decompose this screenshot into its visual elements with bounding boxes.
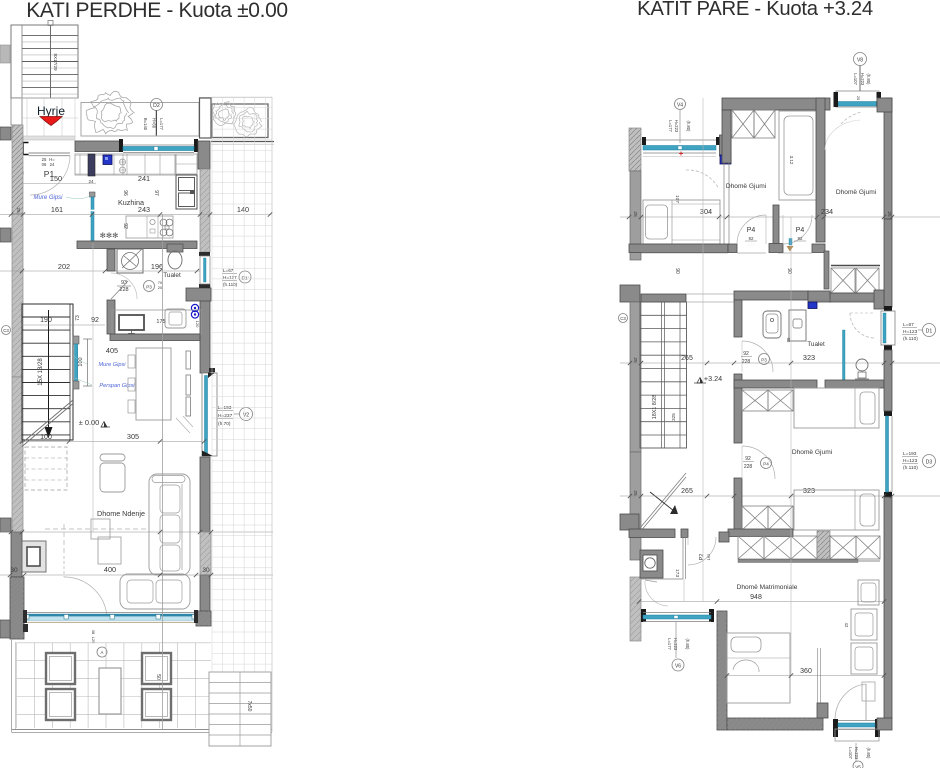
- svg-text:D1': D1': [241, 276, 248, 282]
- svg-text:175: 175: [156, 319, 165, 325]
- svg-text:L=107: L=107: [853, 73, 858, 85]
- svg-text:Dhomë Gjumi: Dhomë Gjumi: [726, 183, 767, 190]
- svg-text:228: 228: [119, 287, 128, 293]
- svg-text:Dhomë Gjumi: Dhomë Gjumi: [836, 189, 877, 196]
- svg-text:P4: P4: [763, 462, 769, 467]
- svg-text:243: 243: [138, 205, 150, 214]
- svg-text:25: 25: [632, 211, 638, 217]
- svg-text:228: 228: [744, 464, 753, 470]
- svg-text:L=107: L=107: [848, 747, 853, 759]
- svg-text:228: 228: [742, 359, 751, 365]
- svg-text:(h.80): (h.80): [686, 121, 691, 133]
- svg-text:241: 241: [138, 174, 150, 183]
- svg-text:L=177: L=177: [667, 638, 672, 650]
- svg-text:7x50: 7x50: [246, 701, 252, 712]
- svg-text:228: 228: [747, 242, 755, 247]
- svg-text:42: 42: [844, 623, 849, 628]
- svg-text:92: 92: [91, 317, 99, 324]
- svg-text:Hyrje: Hyrje: [37, 104, 65, 118]
- svg-text:190: 190: [40, 317, 52, 324]
- svg-text:+3.24: +3.24: [704, 374, 722, 383]
- svg-text:92: 92: [745, 456, 751, 462]
- svg-text:305: 305: [127, 432, 139, 441]
- svg-text:30: 30: [202, 567, 210, 574]
- svg-text:D3: D3: [926, 460, 933, 466]
- svg-text:265: 265: [681, 488, 693, 495]
- svg-text:(h.80): (h.80): [866, 748, 871, 760]
- svg-text:25: 25: [856, 96, 860, 100]
- svg-text:161: 161: [51, 205, 63, 214]
- svg-text:202: 202: [58, 262, 70, 271]
- svg-text:C3: C3: [620, 316, 626, 321]
- svg-text:60: 60: [786, 338, 791, 343]
- svg-text:92: 92: [743, 351, 749, 357]
- svg-text:25: 25: [632, 490, 638, 496]
- svg-text:323: 323: [803, 486, 815, 495]
- svg-text:Dhomë Matrimoniale: Dhomë Matrimoniale: [737, 584, 798, 591]
- svg-text:140: 140: [237, 205, 249, 214]
- svg-text:L=177: L=177: [668, 120, 673, 132]
- svg-text:25: 25: [886, 211, 892, 217]
- svg-text:92: 92: [122, 223, 128, 229]
- svg-text:P1: P1: [44, 169, 55, 179]
- svg-text:25: 25: [15, 207, 21, 213]
- svg-text:162: 162: [706, 553, 711, 560]
- svg-text:Perspan Gipsi: Perspan Gipsi: [99, 383, 135, 389]
- svg-text:120: 120: [195, 321, 200, 328]
- svg-text:92: 92: [748, 236, 754, 241]
- svg-text:(h.110): (h.110): [223, 282, 238, 287]
- svg-text:L=67: L=67: [903, 322, 914, 328]
- svg-text:Mure Gipsi: Mure Gipsi: [98, 362, 126, 368]
- svg-text:P3: P3: [761, 358, 767, 363]
- svg-text:97: 97: [153, 190, 159, 196]
- svg-text:A: A: [101, 650, 104, 655]
- svg-text:V5: V5: [855, 765, 861, 768]
- svg-text:KATI PERDHE - Kuota ±0.00: KATI PERDHE - Kuota ±0.00: [26, 0, 288, 22]
- svg-text:3.12: 3.12: [789, 156, 794, 165]
- svg-text:KATIT PARE - Kuota +3.24: KATIT PARE - Kuota +3.24: [637, 0, 873, 20]
- svg-text:38: 38: [91, 630, 96, 635]
- svg-text:B=140: B=140: [143, 118, 148, 131]
- svg-text:(h.80): (h.80): [685, 639, 690, 651]
- svg-text:H=223: H=223: [854, 747, 859, 760]
- svg-text:H=223: H=223: [673, 638, 678, 651]
- svg-text:C3: C3: [3, 328, 9, 333]
- svg-text:107: 107: [674, 195, 680, 203]
- svg-text:H=223: H=223: [860, 73, 865, 86]
- svg-text:948: 948: [750, 594, 762, 601]
- svg-text:H=123: H=123: [903, 329, 918, 335]
- svg-text:± 0.00: ± 0.00: [79, 418, 100, 427]
- svg-text:L=177: L=177: [159, 118, 164, 130]
- svg-text:V2: V2: [243, 413, 249, 419]
- svg-text:V4: V4: [677, 103, 683, 109]
- svg-text:P2: P2: [699, 554, 705, 561]
- svg-text:H=60: H=60: [152, 118, 157, 129]
- svg-text:06: 06: [42, 162, 47, 167]
- svg-text:304: 304: [700, 207, 712, 216]
- svg-text:V6: V6: [675, 664, 681, 670]
- svg-text:Tualet: Tualet: [163, 272, 181, 279]
- svg-text:405: 405: [106, 346, 118, 355]
- svg-text:L=67: L=67: [223, 268, 234, 273]
- svg-text:96: 96: [122, 190, 128, 196]
- svg-text:H=223: H=223: [674, 120, 679, 133]
- svg-text:L=193: L=193: [903, 451, 917, 457]
- svg-text:90: 90: [674, 268, 680, 274]
- svg-text:173: 173: [674, 569, 680, 577]
- svg-text:Dhomë Gjumi: Dhomë Gjumi: [792, 449, 833, 456]
- svg-text:8X17/29: 8X17/29: [53, 53, 58, 71]
- svg-text:100: 100: [40, 434, 52, 441]
- svg-text:73: 73: [75, 315, 81, 321]
- svg-text:✻✻✻: ✻✻✻: [100, 231, 120, 240]
- svg-text:15X 18/28: 15X 18/28: [38, 358, 44, 386]
- svg-text:H=127: H=127: [223, 275, 237, 280]
- svg-text:(h.70): (h.70): [218, 421, 231, 427]
- svg-text:P3: P3: [146, 285, 152, 290]
- svg-text:D2: D2: [153, 103, 160, 109]
- svg-text:323: 323: [803, 353, 815, 362]
- svg-text:H=123: H=123: [903, 458, 918, 464]
- svg-text:Mure Gipsi: Mure Gipsi: [33, 195, 63, 201]
- svg-text:Tualet: Tualet: [807, 341, 825, 348]
- svg-text:325: 325: [671, 413, 676, 421]
- svg-text:18X1 8/28: 18X1 8/28: [652, 395, 658, 420]
- svg-text:25: 25: [632, 357, 638, 363]
- svg-text:(h.110): (h.110): [903, 336, 918, 342]
- svg-text:(h.80): (h.80): [866, 74, 871, 86]
- svg-text:D1: D1: [926, 329, 933, 335]
- svg-text:P4: P4: [796, 227, 805, 234]
- svg-text:400: 400: [104, 565, 116, 574]
- svg-text:24: 24: [50, 162, 55, 167]
- svg-text:L=193: L=193: [218, 405, 232, 411]
- svg-text:(h.110): (h.110): [903, 465, 918, 471]
- svg-text:P4: P4: [747, 227, 756, 234]
- svg-text:50: 50: [155, 674, 161, 680]
- svg-text:360: 360: [800, 668, 812, 675]
- svg-text:V8: V8: [857, 58, 863, 64]
- svg-text:Dhome Ndenje: Dhome Ndenje: [97, 509, 145, 518]
- svg-text:265: 265: [681, 355, 693, 362]
- svg-text:234: 234: [821, 207, 833, 216]
- svg-text:92: 92: [797, 236, 803, 241]
- svg-text:24: 24: [88, 179, 94, 184]
